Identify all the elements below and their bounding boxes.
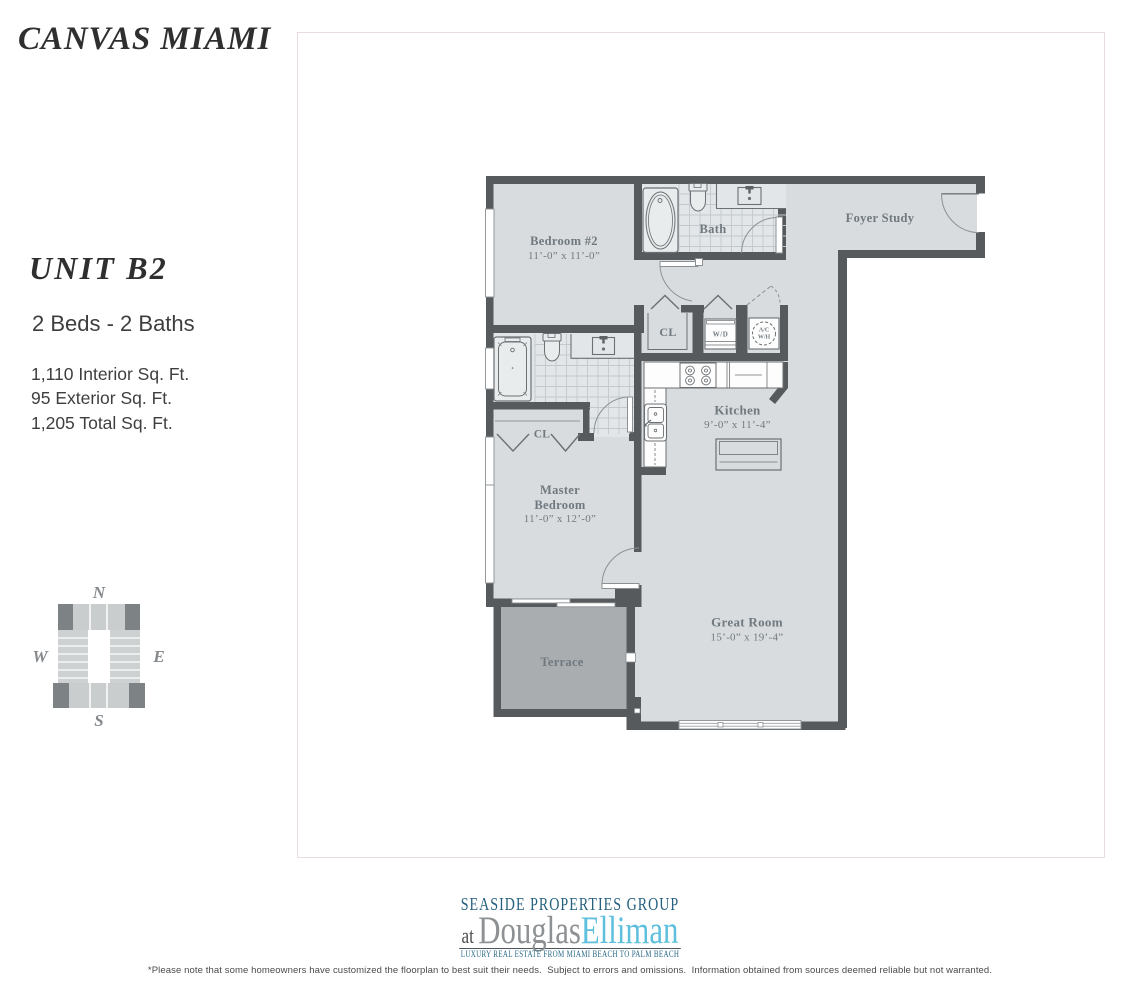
svg-text:CL: CL	[534, 429, 551, 441]
svg-text:Kitchen: Kitchen	[714, 403, 761, 418]
svg-text:Great Room: Great Room	[711, 615, 783, 630]
svg-text:Master: Master	[540, 483, 580, 497]
svg-text:Bath: Bath	[700, 222, 727, 236]
svg-text:11’-0” x 11’-0”: 11’-0” x 11’-0”	[528, 250, 600, 262]
svg-text:Bedroom: Bedroom	[534, 498, 585, 512]
svg-text:9’-0” x 11’-4”: 9’-0” x 11’-4”	[704, 419, 771, 431]
svg-text:W/H: W/H	[758, 335, 771, 341]
svg-text:11’-0” x 12’-0”: 11’-0” x 12’-0”	[524, 513, 597, 525]
svg-text:A/C: A/C	[759, 328, 769, 334]
svg-text:CL: CL	[659, 325, 676, 339]
svg-text:Foyer Study: Foyer Study	[846, 211, 915, 225]
svg-text:Bedroom #2: Bedroom #2	[530, 234, 598, 248]
svg-text:W/D: W/D	[713, 331, 729, 339]
svg-text:15’-0” x 19’-4”: 15’-0” x 19’-4”	[711, 632, 784, 644]
svg-text:Terrace: Terrace	[540, 655, 583, 669]
